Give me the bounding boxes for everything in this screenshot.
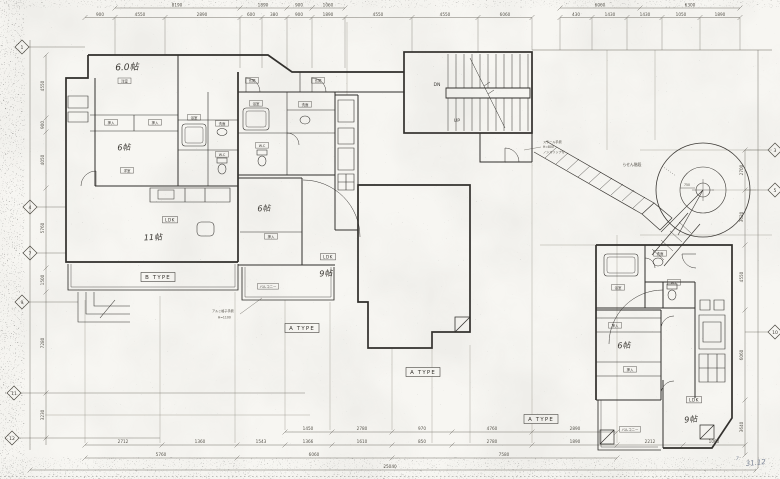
noise-bottom-edge — [0, 458, 780, 479]
floor-plan-sheet: 8190 1890 900 1060 6060 6300 900 4550 28… — [0, 0, 780, 479]
noise-top-edge — [0, 0, 780, 7]
floor-plan-drawing: 8190 1890 900 1060 6060 6300 900 4550 28… — [0, 0, 780, 479]
noise-blotch — [0, 0, 780, 479]
noise-left-edge — [0, 0, 24, 479]
scan-noise — [0, 0, 780, 479]
